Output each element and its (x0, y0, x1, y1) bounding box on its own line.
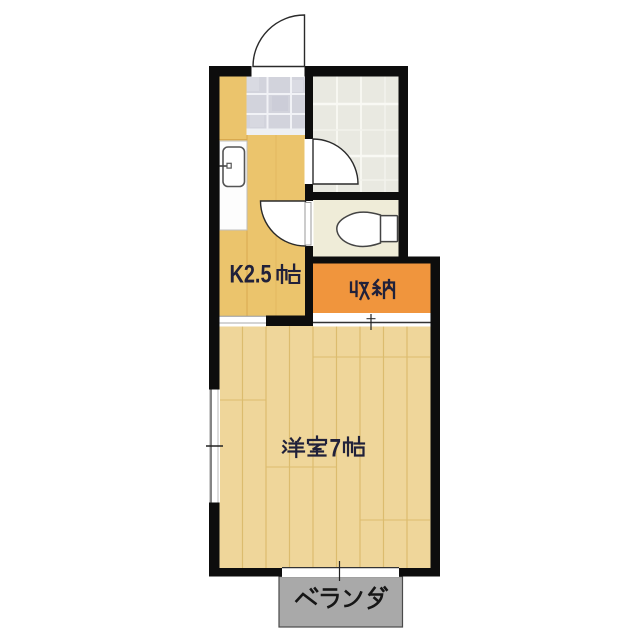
svg-text:K2.5: K2.5 (230, 261, 272, 289)
svg-text:7: 7 (330, 435, 342, 463)
